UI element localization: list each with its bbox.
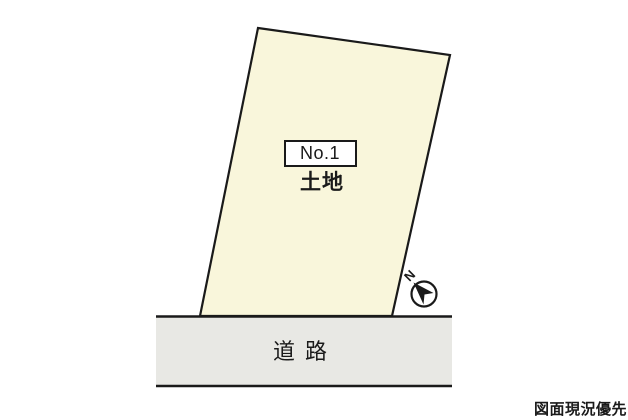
disclaimer-text: 図面現況優先 <box>534 400 627 418</box>
north-compass: N <box>401 267 436 306</box>
road-band: 道 路 <box>156 317 452 387</box>
parcel-number-text: No.1 <box>300 143 340 163</box>
road-label: 道 路 <box>273 339 329 364</box>
north-label: N <box>401 267 418 284</box>
site-plan-svg: 道 路 No.1 土地 N 図面現況優先 <box>0 0 628 420</box>
plot-diagram-page: 道 路 No.1 土地 N 図面現況優先 <box>0 0 628 420</box>
parcel-type-text: 土地 <box>300 170 344 194</box>
